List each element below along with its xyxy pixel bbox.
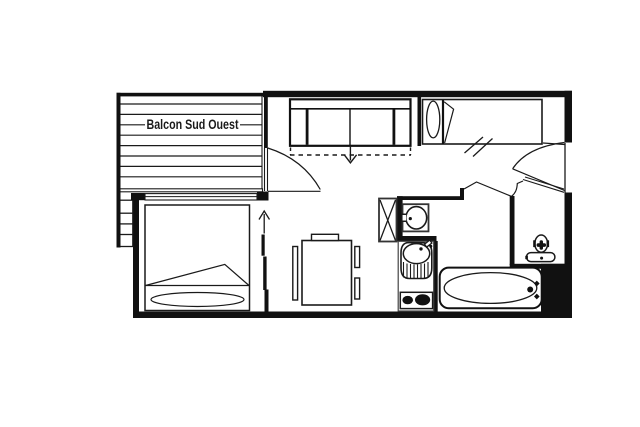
svg-text:Balcon Sud Ouest: Balcon Sud Ouest [147,116,239,132]
